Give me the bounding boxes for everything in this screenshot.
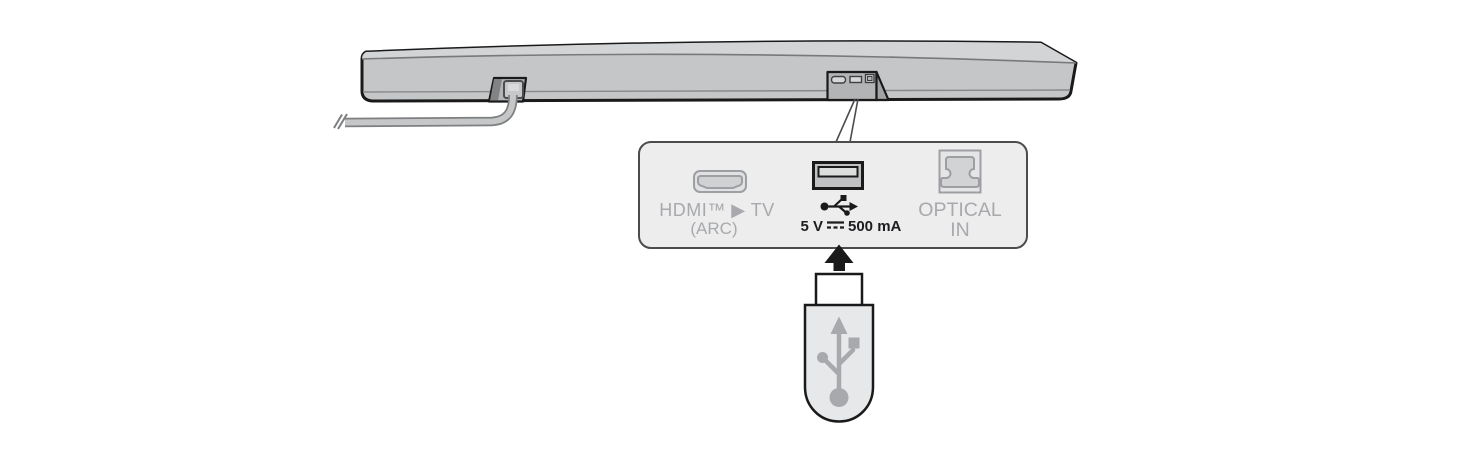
usb-port-icon xyxy=(814,163,863,189)
hdmi-port-icon xyxy=(694,171,746,192)
callout-line-right xyxy=(850,99,858,142)
optical-label-line1: OPTICAL xyxy=(918,199,1002,221)
power-plug-face xyxy=(508,84,519,91)
hdmi-arc-label: (ARC) xyxy=(690,219,737,238)
rear-ports-recess xyxy=(828,72,889,100)
connection-panel: HDMI™ ▶ TV (ARC) 5 V 500 mA O xyxy=(639,142,1027,248)
optical-port-icon xyxy=(940,151,981,193)
usb-drive-connector xyxy=(816,274,862,306)
usb-flash-drive xyxy=(805,274,873,422)
mini-optical-port-inner xyxy=(868,77,873,81)
soundbar-usb-diagram: HDMI™ ▶ TV (ARC) 5 V 500 mA O xyxy=(0,0,1465,457)
mini-usb-port-icon xyxy=(850,77,862,83)
usb-rating-suffix: 500 mA xyxy=(848,218,902,235)
callout-lines xyxy=(836,99,858,142)
soundbar-rear-view xyxy=(334,42,1076,129)
callout-line-left xyxy=(836,99,855,142)
usb-rating-prefix: 5 V xyxy=(800,218,823,235)
optical-label-line2: IN xyxy=(950,219,970,241)
power-cable-recess xyxy=(489,78,526,102)
mini-hdmi-port-icon xyxy=(832,77,846,84)
hdmi-label: HDMI™ ▶ TV xyxy=(659,200,775,220)
diagram-canvas: HDMI™ ▶ TV (ARC) 5 V 500 mA O xyxy=(0,0,1465,457)
